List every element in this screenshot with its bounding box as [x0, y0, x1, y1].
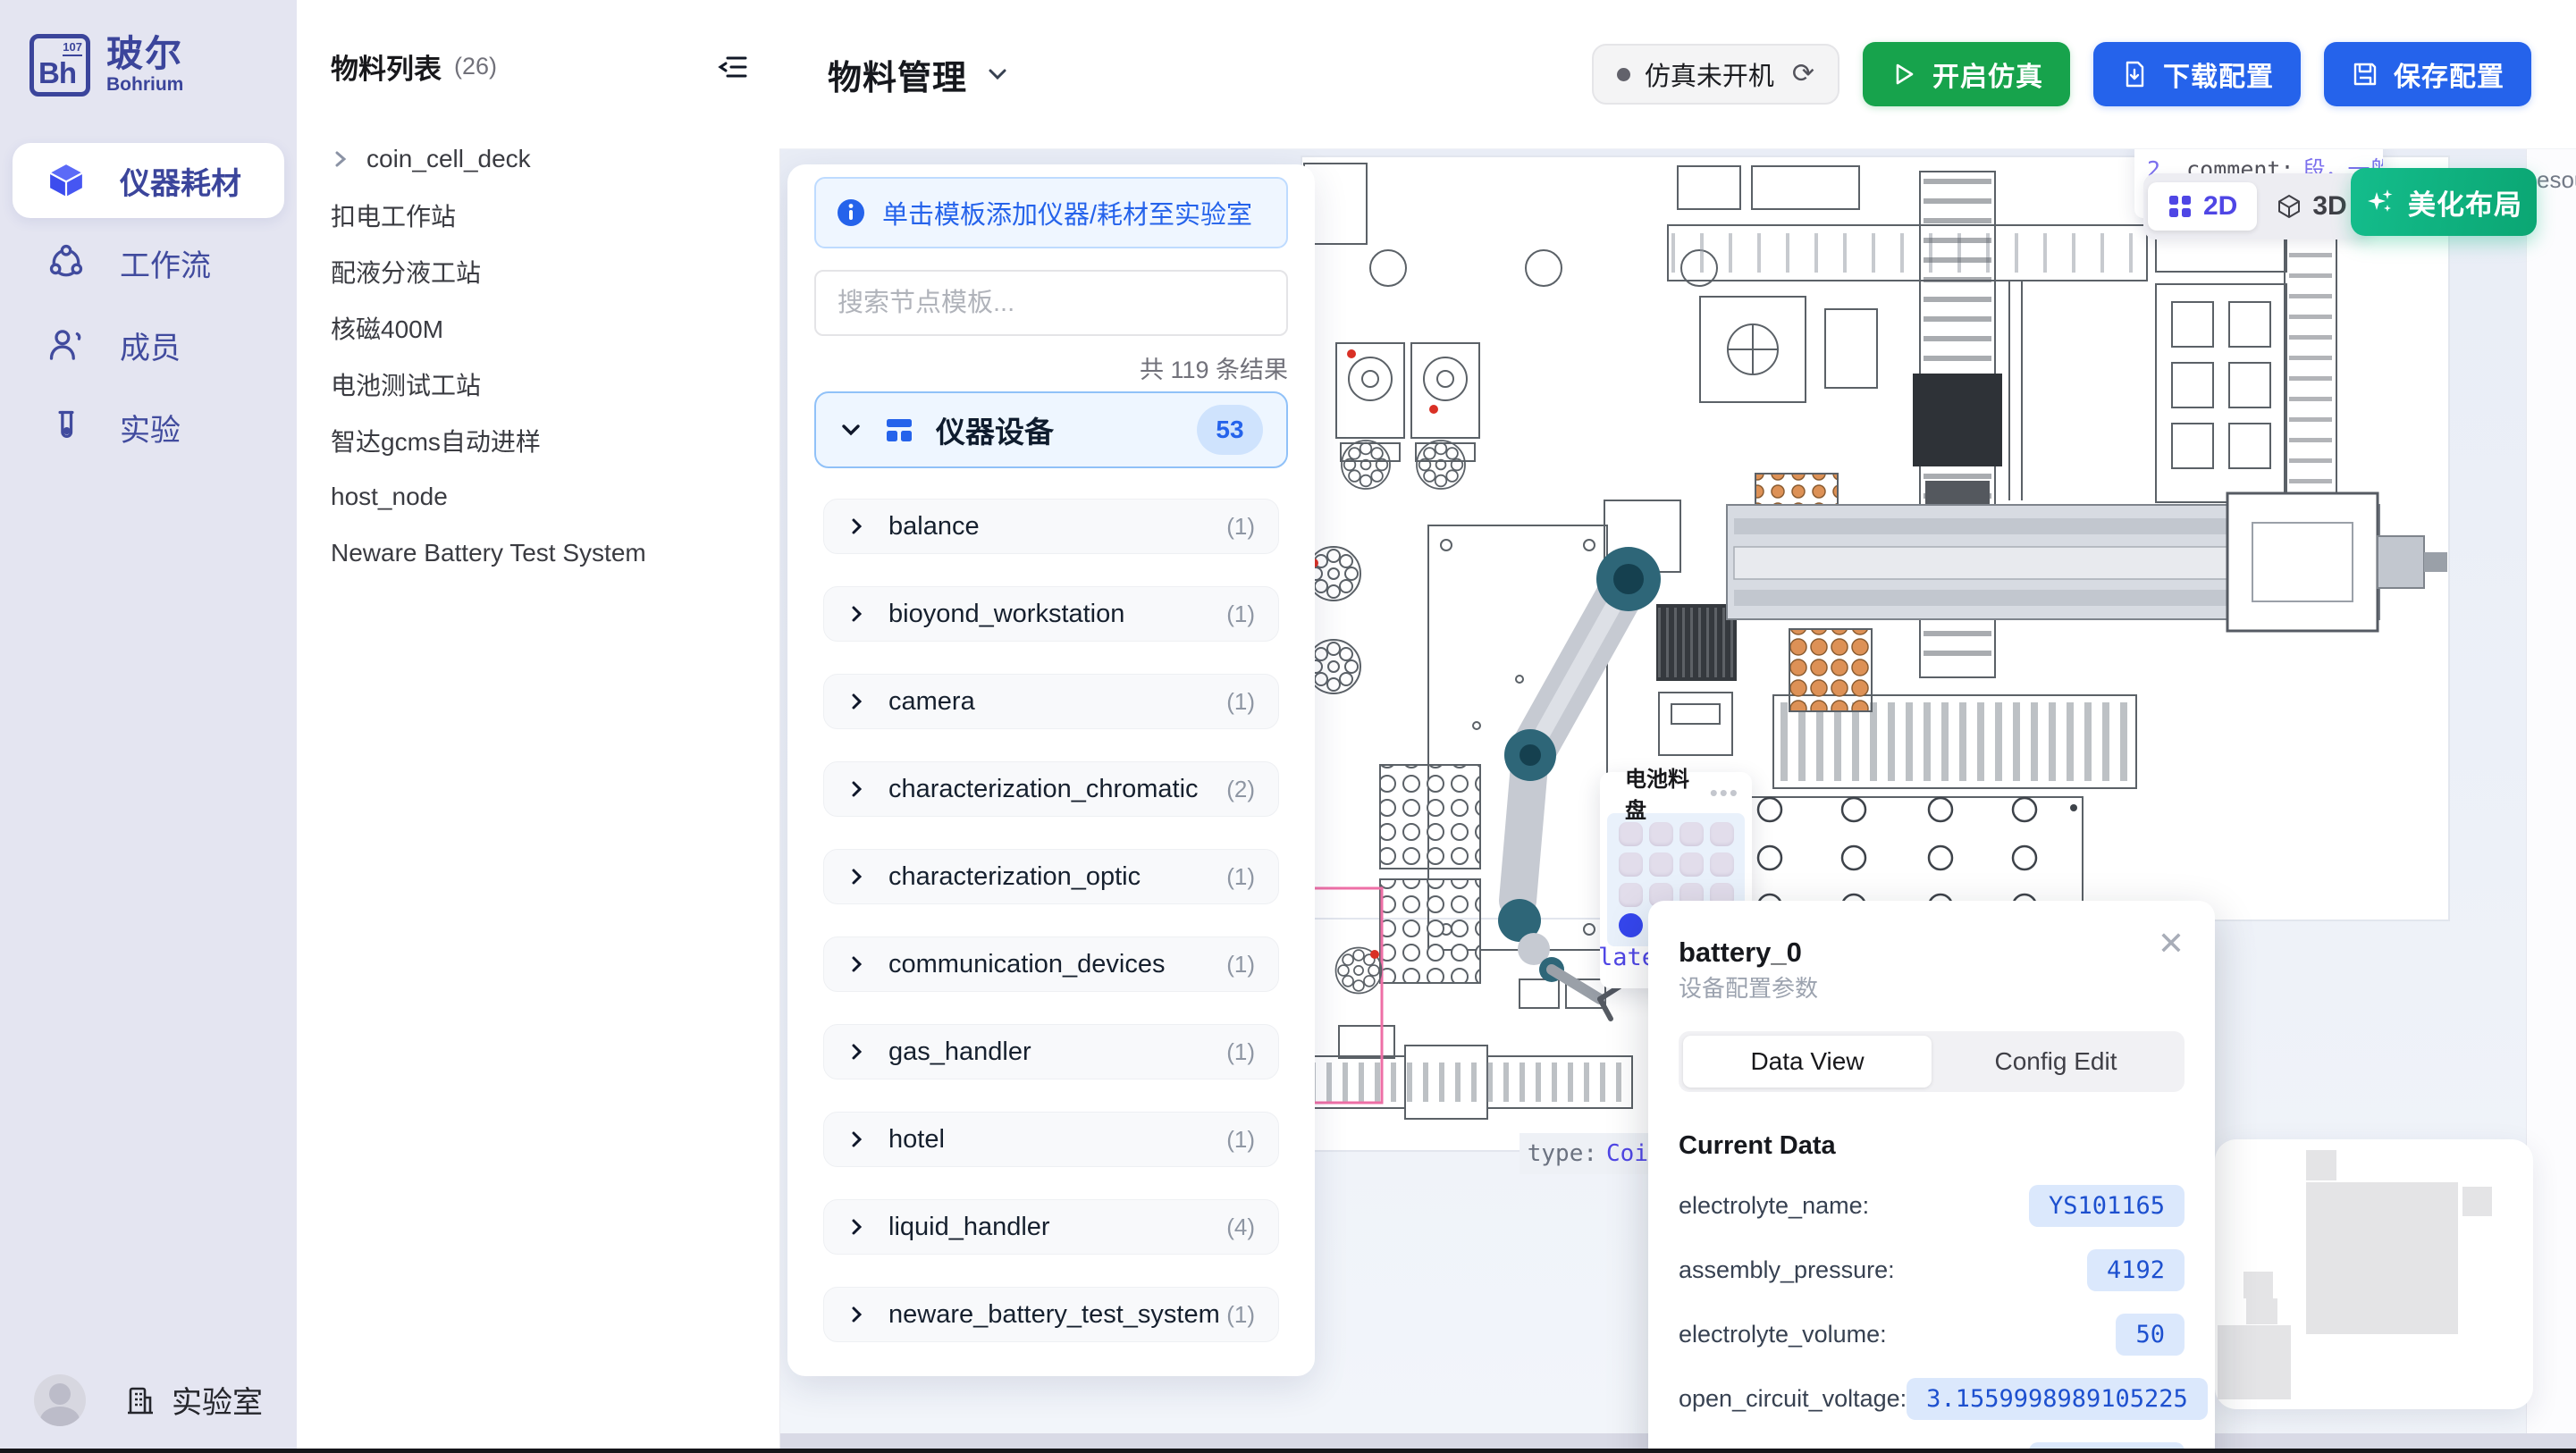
beautify-layout-button[interactable]: 美化布局 [2351, 168, 2537, 236]
test-tube-icon [46, 407, 86, 447]
battery-tray-title: 电池料盘 [1625, 761, 1710, 824]
logo-name-zh: 玻尔 [106, 34, 183, 73]
type-key: type: [1528, 1140, 1597, 1167]
tray-slot[interactable] [1649, 822, 1673, 846]
category-name: liquid_handler [888, 1213, 1219, 1242]
workflow-icon [46, 243, 86, 282]
field-value: 3.1559998989105225 [1907, 1378, 2208, 1420]
collapse-list-icon[interactable] [717, 51, 749, 83]
bohrium-logo-badge: 107 Bh [29, 34, 90, 97]
save-icon [2351, 60, 2379, 88]
category-list: balance (1) bioyond_workstation (1) came [814, 499, 1288, 1342]
material-item[interactable]: coin_cell_deck [331, 130, 762, 187]
category-count: (1) [1226, 513, 1255, 541]
materials-list: coin_cell_deck 扣电工作站 配液分液工站 [331, 130, 762, 581]
category-row[interactable]: characterization_optic (1) [823, 849, 1279, 904]
material-item-label: 扣电工作站 [331, 197, 456, 233]
category-count: (4) [1226, 1214, 1255, 1241]
sidebar: 107 Bh 玻尔 Bohrium 仪器耗材 [0, 0, 297, 1453]
material-item-label: Neware Battery Test System [331, 539, 646, 567]
simulation-status-text: 仿真未开机 [1645, 55, 1774, 93]
download-config-label: 下载配置 [2163, 55, 2274, 94]
material-item[interactable]: 核磁400M [331, 299, 762, 356]
sidebar-item-instruments[interactable]: 仪器耗材 [13, 143, 284, 218]
category-name: bioyond_workstation [888, 600, 1219, 629]
field-row: assembly_pressure: 4192 [1679, 1238, 2185, 1302]
category-row[interactable]: liquid_handler (4) [823, 1199, 1279, 1255]
material-item-label: 智达gcms自动进样 [331, 423, 541, 458]
sidebar-nav: 仪器耗材 工作流 成员 [13, 143, 284, 465]
lab-switcher-label: 实验室 [172, 1378, 263, 1422]
status-dot-icon [1617, 68, 1630, 81]
material-item[interactable]: 智达gcms自动进样 [331, 412, 762, 468]
materials-title: 物料列表 [331, 46, 442, 87]
instrument-group-label: 仪器设备 [936, 408, 1054, 451]
screen-edge [0, 1449, 2576, 1453]
category-row[interactable]: characterization_chromatic (2) [823, 761, 1279, 817]
minimap-block [2246, 1298, 2277, 1324]
download-config-button[interactable]: 下载配置 [2093, 42, 2301, 106]
avatar[interactable] [34, 1374, 86, 1426]
tray-slot[interactable] [1710, 852, 1734, 877]
field-label: open_circuit_voltage: [1679, 1385, 1907, 1413]
minimap-block [2306, 1150, 2336, 1180]
material-item[interactable]: host_node [331, 468, 762, 525]
start-simulation-button[interactable]: 开启仿真 [1863, 42, 2070, 106]
instrument-group-header[interactable]: 仪器设备 53 [814, 391, 1288, 468]
add-template-hint: 单击模板添加仪器/耗材至实验室 [814, 177, 1288, 248]
app-root: esou 2_comment:段，一般为空，stat 2D 3D [0, 0, 2576, 1453]
category-row[interactable]: hotel (1) [823, 1112, 1279, 1167]
category-count: (1) [1226, 601, 1255, 628]
popup-tab[interactable]: Data View [1683, 1036, 1932, 1088]
category-name: neware_battery_test_system [888, 1300, 1219, 1330]
minimap[interactable] [2215, 1139, 2533, 1409]
category-row[interactable]: gas_handler (1) [823, 1024, 1279, 1079]
sidebar-item-label: 工作流 [120, 241, 211, 285]
save-config-label: 保存配置 [2394, 55, 2504, 94]
materials-count: (26) [454, 53, 497, 80]
cube-3d-icon [2277, 194, 2302, 219]
field-label: electrolyte_name: [1679, 1192, 1869, 1220]
category-row[interactable]: balance (1) [823, 499, 1279, 554]
simulation-status-badge: 仿真未开机 ⟳ [1592, 44, 1839, 105]
view-mode-toggle: 2D 3D [2143, 173, 2371, 239]
tray-slot[interactable] [1710, 822, 1734, 846]
material-item[interactable]: Neware Battery Test System [331, 525, 762, 581]
search-template-input[interactable] [814, 270, 1288, 336]
popup-title: battery_0 [1679, 933, 2185, 972]
minimap-block [2306, 1182, 2458, 1334]
material-item-label: 核磁400M [331, 310, 443, 346]
tray-slot[interactable] [1649, 852, 1673, 877]
view-3d-label: 3D [2312, 191, 2346, 222]
chevron-right-icon [847, 955, 865, 973]
info-icon [836, 197, 866, 228]
tray-slot[interactable] [1679, 852, 1704, 877]
page-title-dropdown[interactable]: 物料管理 [828, 0, 1010, 148]
members-icon [46, 325, 86, 365]
save-config-button[interactable]: 保存配置 [2324, 42, 2531, 106]
category-count: (1) [1226, 863, 1255, 891]
page-title: 物料管理 [828, 50, 967, 99]
field-row: open_circuit_voltage: 3.1559998989105225 [1679, 1366, 2185, 1431]
category-count: (1) [1226, 951, 1255, 978]
field-value: YS101165 [2029, 1185, 2185, 1227]
category-count: (1) [1226, 1126, 1255, 1154]
category-name: balance [888, 512, 1219, 542]
material-item[interactable]: 扣电工作站 [331, 187, 762, 243]
tray-slot[interactable] [1679, 822, 1704, 846]
node-type-tooltip-fragment: type: Coi [1520, 1133, 1654, 1174]
category-count: (1) [1226, 1038, 1255, 1066]
building-icon [123, 1383, 157, 1417]
logo-number: 107 [63, 40, 82, 56]
logo-name-en: Bohrium [106, 73, 183, 97]
field-label: electrolyte_volume: [1679, 1321, 1887, 1348]
category-count: (2) [1226, 776, 1255, 803]
sidebar-item-label: 成员 [120, 323, 181, 367]
material-item-label: 配液分液工站 [331, 254, 481, 290]
chevron-right-icon [847, 605, 865, 623]
current-data-heading: Current Data [1679, 1131, 2185, 1161]
sparkles-icon [2365, 187, 2395, 217]
category-name: characterization_chromatic [888, 775, 1219, 804]
category-name: characterization_optic [888, 862, 1219, 892]
sidebar-item-label: 仪器耗材 [120, 159, 241, 203]
refresh-icon[interactable]: ⟳ [1792, 61, 1814, 88]
material-item-label: coin_cell_deck [366, 145, 531, 173]
category-row[interactable]: camera (1) [823, 674, 1279, 729]
bohrium-logo: 107 Bh 玻尔 Bohrium [29, 34, 183, 97]
chevron-right-icon [847, 517, 865, 535]
field-value: 4192 [2087, 1249, 2185, 1291]
start-simulation-label: 开启仿真 [1932, 55, 2043, 94]
tray-menu-icon[interactable]: ••• [1710, 787, 1739, 799]
material-item-label: 电池测试工站 [331, 366, 481, 402]
field-row: electrolyte_volume: 50 [1679, 1302, 2185, 1366]
tray-slot[interactable] [1619, 852, 1643, 877]
chevron-right-icon [847, 1306, 865, 1323]
field-value: 50 [2116, 1314, 2185, 1356]
cube-icon [46, 161, 86, 200]
view-2d-button[interactable]: 2D [2148, 182, 2257, 231]
chevron-down-icon [985, 62, 1010, 87]
lab-switcher[interactable]: 实验室 [123, 1378, 263, 1422]
collapsed-right-panel[interactable] [2526, 148, 2576, 1435]
chevron-down-icon [839, 418, 863, 441]
minimap-block [2243, 1272, 2273, 1298]
sidebar-item-experiments[interactable]: 实验 [13, 390, 284, 465]
category-row[interactable]: communication_devices (1) [823, 936, 1279, 992]
category-name: hotel [888, 1125, 1219, 1155]
category-row[interactable]: bioyond_workstation (1) [823, 586, 1279, 642]
chevron-right-icon [847, 1130, 865, 1148]
tray-slot[interactable] [1619, 883, 1643, 907]
chevron-right-icon [847, 693, 865, 710]
play-icon [1890, 60, 1918, 88]
sidebar-item-label: 实验 [120, 406, 181, 449]
hint-text: 单击模板添加仪器/耗材至实验室 [882, 194, 1252, 231]
chevron-right-icon [847, 1043, 865, 1061]
chevron-right-icon[interactable] [331, 149, 350, 169]
template-panel: 单击模板添加仪器/耗材至实验室 共 119 条结果 仪器设备 53 [787, 164, 1315, 1376]
category-name: gas_handler [888, 1037, 1219, 1067]
popup-subtitle: 设备配置参数 [1679, 972, 2185, 1004]
category-count: (1) [1226, 1301, 1255, 1329]
instrument-group-count-badge: 53 [1197, 405, 1263, 455]
type-value: Coi [1606, 1140, 1648, 1167]
material-item[interactable]: 配液分液工站 [331, 243, 762, 299]
download-file-icon [2120, 60, 2149, 88]
view-2d-label: 2D [2203, 191, 2237, 222]
minimap-block [2462, 1187, 2492, 1216]
category-row[interactable]: neware_battery_test_system (1) [823, 1287, 1279, 1342]
logo-symbol: Bh [38, 56, 76, 90]
material-item-label: host_node [331, 483, 448, 511]
popup-tabs: Data View Config Edit [1679, 1031, 2185, 1092]
field-list: electrolyte_name: YS101165 assembly_pres… [1679, 1173, 2185, 1453]
category-count: (1) [1226, 688, 1255, 716]
close-icon[interactable]: ✕ [2158, 928, 2185, 960]
sidebar-item-workflow[interactable]: 工作流 [13, 225, 284, 300]
field-row: electrolyte_name: YS101165 [1679, 1173, 2185, 1238]
popup-tab[interactable]: Config Edit [1932, 1036, 2180, 1088]
main-header: 物料管理 仿真未开机 ⟳ 开启仿真 下载配置 [779, 0, 2576, 149]
chevron-right-icon [847, 868, 865, 886]
right-panel-text-fragment: esou [2537, 166, 2576, 194]
material-item[interactable]: 电池测试工站 [331, 356, 762, 412]
category-name: communication_devices [888, 950, 1219, 979]
field-label: assembly_pressure: [1679, 1256, 1895, 1284]
sidebar-item-members[interactable]: 成员 [13, 307, 284, 382]
device-config-popup: ✕ battery_0 设备配置参数 Data View Config Edit… [1648, 901, 2215, 1453]
minimap-block [2218, 1325, 2291, 1399]
result-count: 共 119 条结果 [814, 350, 1288, 377]
beautify-layout-label: 美化布局 [2408, 182, 2522, 223]
tray-slot-selected[interactable] [1619, 913, 1643, 937]
chevron-right-icon [847, 780, 865, 798]
tray-slot[interactable] [1619, 822, 1643, 846]
grid-2d-icon [2168, 194, 2193, 219]
chevron-right-icon [847, 1218, 865, 1236]
devices-grid-icon [884, 415, 914, 445]
category-name: camera [888, 687, 1219, 717]
materials-panel: 物料列表 (26) coin_cell_deck [297, 0, 780, 1453]
